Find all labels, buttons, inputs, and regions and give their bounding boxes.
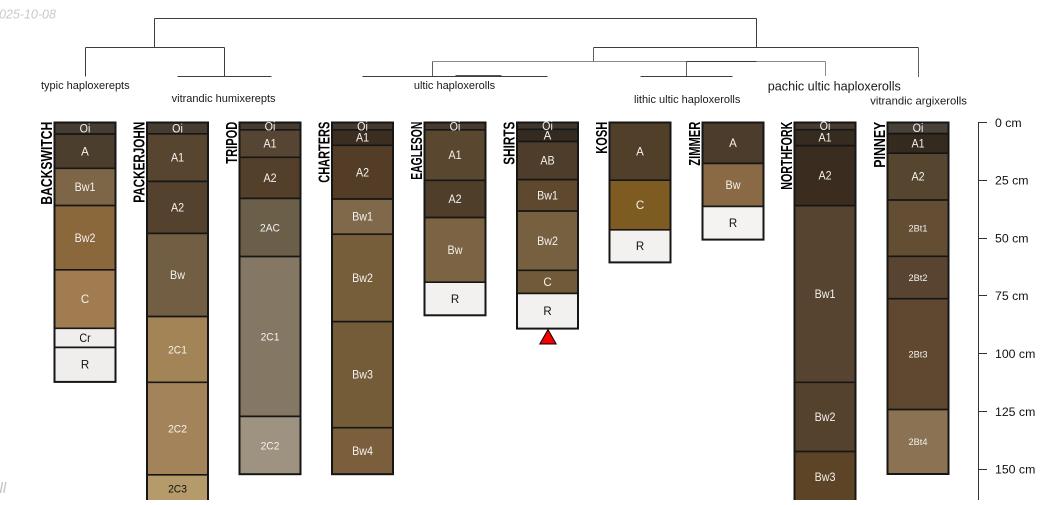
svg-text:R: R [81, 360, 89, 372]
svg-text:Bw3: Bw3 [815, 472, 836, 484]
svg-text:2C3: 2C3 [168, 483, 187, 495]
svg-text:C: C [636, 200, 644, 212]
svg-text:A1: A1 [448, 150, 461, 162]
svg-text:A2: A2 [818, 171, 831, 183]
svg-text:A1: A1 [911, 139, 924, 151]
svg-text:A2: A2 [911, 172, 924, 184]
svg-text:A: A [81, 146, 89, 158]
svg-text:2Bt1: 2Bt1 [909, 224, 928, 234]
svg-text:Bw4: Bw4 [352, 446, 373, 458]
svg-text:KOSH: KOSH [594, 122, 611, 154]
svg-text:2Bt4: 2Bt4 [909, 437, 928, 447]
svg-text:A1: A1 [263, 139, 276, 151]
svg-text:C: C [81, 294, 89, 306]
svg-text:Bw2: Bw2 [352, 273, 373, 285]
svg-text:150 cm: 150 cm [995, 463, 1035, 477]
svg-text:A2: A2 [448, 194, 461, 206]
svg-text:Bw1: Bw1 [815, 289, 836, 301]
svg-text:Bw: Bw [448, 245, 464, 257]
svg-text:Cr: Cr [79, 333, 90, 345]
svg-text:2AC: 2AC [260, 222, 280, 234]
svg-text:Bw1: Bw1 [75, 182, 96, 194]
svg-text:R: R [729, 218, 737, 230]
svg-text:NORTHFORK: NORTHFORK [779, 121, 796, 190]
svg-text:Bw1: Bw1 [352, 212, 373, 224]
svg-text:Oi: Oi [357, 121, 368, 133]
svg-text:125 cm: 125 cm [995, 405, 1035, 419]
svg-text:2Bt2: 2Bt2 [909, 273, 928, 283]
svg-text:ZIMMER: ZIMMER [687, 122, 704, 166]
svg-text:2C1: 2C1 [168, 344, 187, 356]
svg-text:EAGLESON: EAGLESON [409, 122, 426, 180]
svg-text:2C2: 2C2 [261, 440, 280, 452]
svg-text:Oi: Oi [265, 121, 276, 133]
svg-text:lithic ultic haploxerolls: lithic ultic haploxerolls [634, 94, 741, 106]
svg-text:vitrandic humixerepts: vitrandic humixerepts [172, 93, 276, 105]
svg-text:2C2: 2C2 [168, 424, 187, 436]
svg-text:50 cm: 50 cm [995, 231, 1029, 245]
svg-text:A: A [729, 138, 737, 150]
svg-text:R: R [543, 306, 551, 318]
svg-text:Oi: Oi [450, 121, 461, 133]
svg-text:ultic haploxerolls: ultic haploxerolls [414, 80, 496, 92]
svg-text:Oi: Oi [820, 121, 831, 133]
svg-text:BACKSWITCH: BACKSWITCH [39, 122, 56, 205]
svg-text:A2: A2 [263, 173, 276, 185]
svg-text:A: A [544, 131, 552, 143]
svg-text:AB: AB [540, 156, 555, 168]
svg-text:0 cm: 0 cm [995, 116, 1022, 130]
svg-text:Bw2: Bw2 [537, 236, 558, 248]
svg-text:A1: A1 [818, 133, 831, 145]
svg-text:Oi: Oi [172, 123, 183, 135]
svg-text:R: R [451, 294, 459, 306]
svg-text:A2: A2 [171, 203, 184, 215]
svg-text:ll: ll [0, 480, 7, 497]
svg-text:2C1: 2C1 [261, 331, 280, 343]
svg-text:CHARTERS: CHARTERS [317, 122, 334, 183]
svg-text:Bw: Bw [726, 180, 742, 192]
svg-text:Oi: Oi [913, 123, 924, 135]
svg-text:2025-10-08: 2025-10-08 [0, 8, 56, 22]
svg-text:PACKERJOHN: PACKERJOHN [132, 122, 149, 203]
svg-text:100 cm: 100 cm [995, 347, 1035, 361]
svg-text:Bw3: Bw3 [352, 370, 373, 382]
svg-text:vitrandic argixerolls: vitrandic argixerolls [870, 96, 967, 108]
svg-text:PINNEY: PINNEY [872, 121, 889, 168]
svg-text:Bw2: Bw2 [75, 233, 96, 245]
svg-text:R: R [636, 241, 644, 253]
svg-text:A1: A1 [356, 133, 369, 145]
svg-text:Oi: Oi [80, 123, 91, 135]
svg-text:A: A [636, 146, 644, 158]
svg-text:A1: A1 [171, 153, 184, 165]
svg-text:75 cm: 75 cm [995, 289, 1029, 303]
svg-text:SHIRTS: SHIRTS [502, 122, 519, 165]
svg-text:C: C [543, 277, 551, 289]
svg-text:Bw2: Bw2 [815, 412, 836, 424]
svg-text:pachic ultic haploxerolls: pachic ultic haploxerolls [768, 79, 901, 93]
svg-text:typic haploxerepts: typic haploxerepts [41, 80, 130, 92]
svg-text:2Bt3: 2Bt3 [909, 349, 928, 359]
svg-text:TRIPOD: TRIPOD [224, 122, 241, 164]
svg-text:25 cm: 25 cm [995, 174, 1029, 188]
svg-text:Bw: Bw [170, 270, 186, 282]
svg-text:A2: A2 [356, 167, 369, 179]
svg-text:Bw1: Bw1 [537, 190, 558, 202]
